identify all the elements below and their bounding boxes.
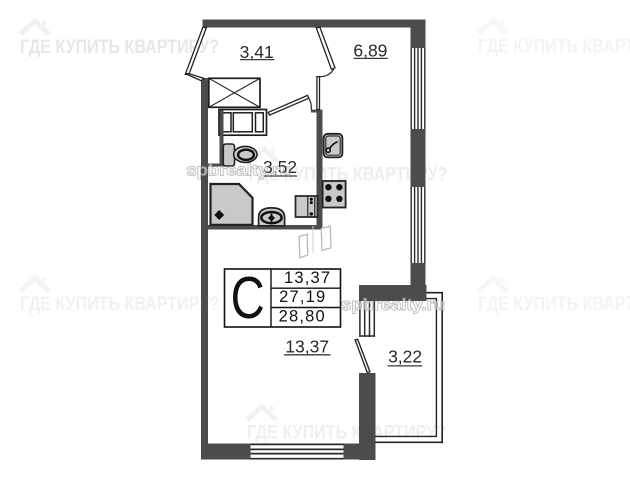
svg-text:ГДЕ КУПИТЬ КВАРТИРУ?: ГДЕ КУПИТЬ КВАРТИРУ? xyxy=(478,35,630,57)
svg-text:ГДЕ КУПИТЬ КВАРТИРУ?: ГДЕ КУПИТЬ КВАРТИРУ? xyxy=(20,293,219,315)
svg-text:27,19: 27,19 xyxy=(279,288,326,306)
svg-text:3,22: 3,22 xyxy=(388,347,422,367)
svg-text:spbrealty.ru: spbrealty.ru xyxy=(341,296,445,314)
svg-text:13,37: 13,37 xyxy=(284,269,331,287)
svg-text:ГДЕ КУПИТЬ КВАРТИРУ?: ГДЕ КУПИТЬ КВАРТИРУ? xyxy=(247,421,446,443)
svg-text:28,80: 28,80 xyxy=(279,308,326,326)
svg-text:3,41: 3,41 xyxy=(240,42,274,62)
svg-text:13,37: 13,37 xyxy=(285,336,329,356)
svg-text:spbrealty.ru: spbrealty.ru xyxy=(187,162,291,180)
svg-text:C: C xyxy=(231,266,265,331)
svg-text:ГДЕ КУПИТЬ КВАРТИРУ?: ГДЕ КУПИТЬ КВАРТИРУ? xyxy=(478,293,630,315)
svg-text:ГДЕ КУПИТЬ КВАРТИРУ?: ГДЕ КУПИТЬ КВАРТИРУ? xyxy=(20,36,219,58)
svg-text:6,89: 6,89 xyxy=(353,40,387,60)
